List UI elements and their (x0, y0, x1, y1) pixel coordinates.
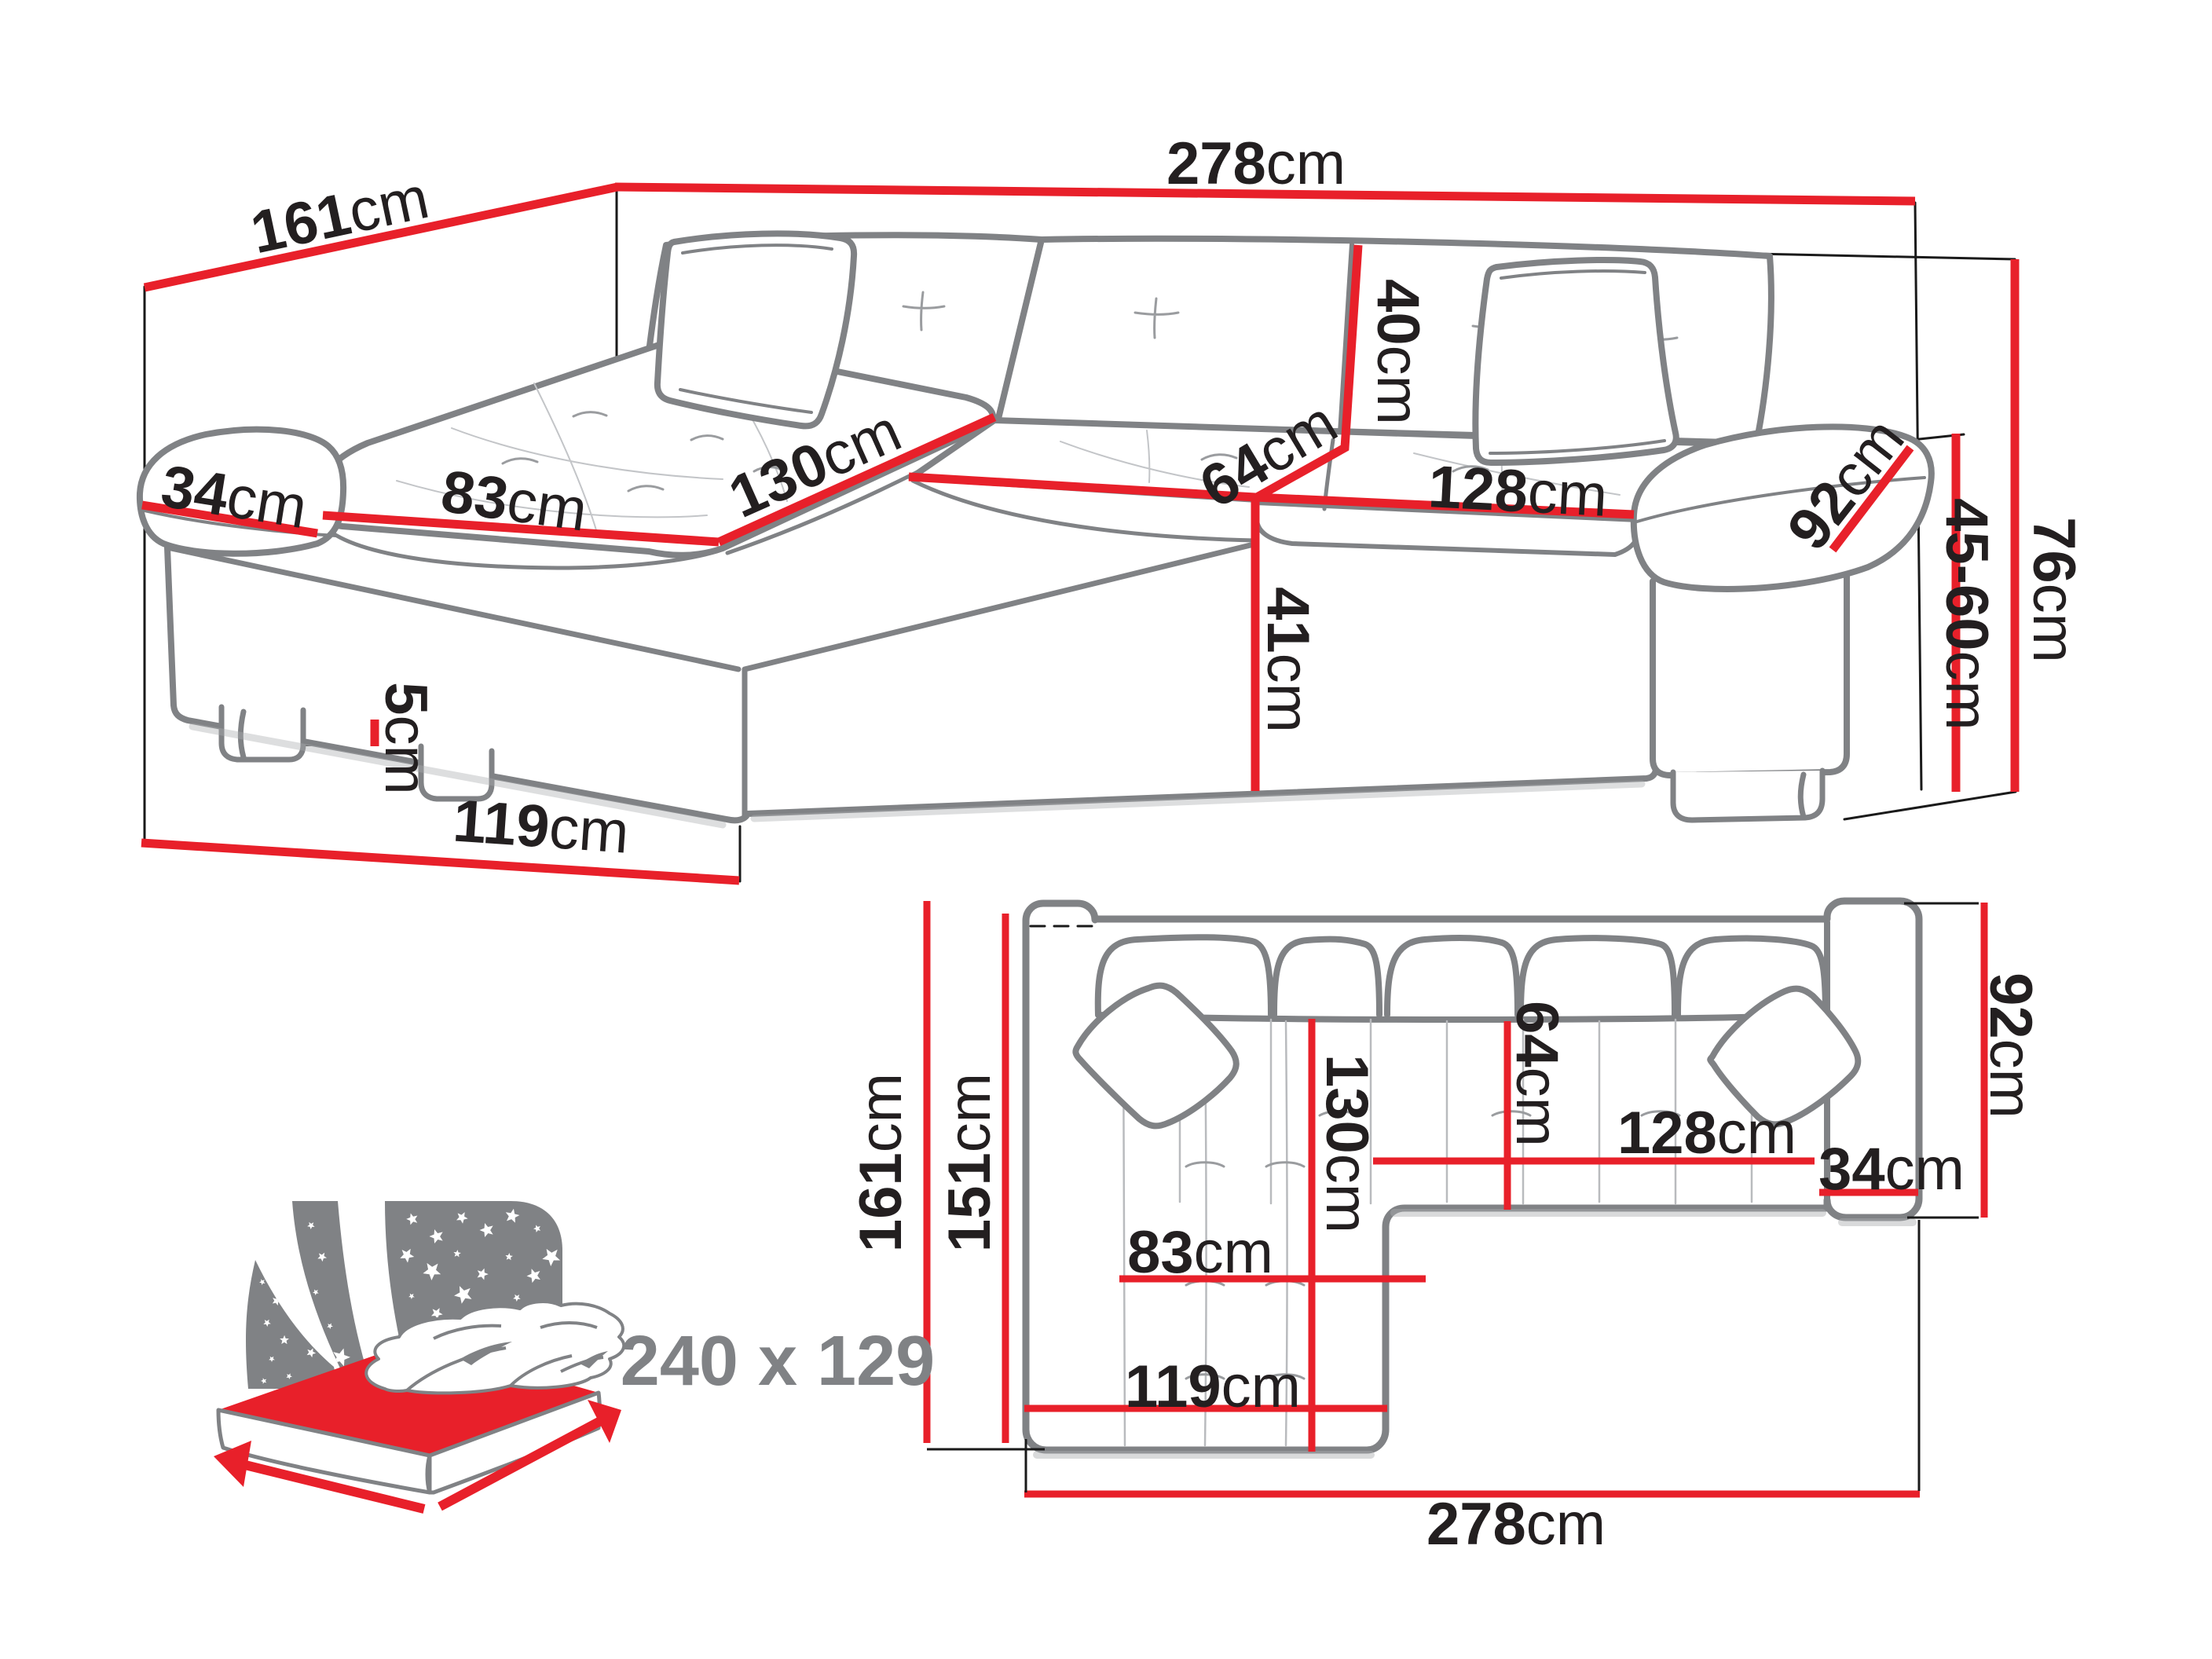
svg-text:119cm: 119cm (1125, 1353, 1301, 1420)
svg-text:64cm: 64cm (1503, 1001, 1570, 1147)
svg-text:278cm: 278cm (1166, 130, 1346, 197)
svg-text:83cm: 83cm (1127, 1219, 1273, 1286)
svg-text:130cm: 130cm (1313, 1054, 1380, 1233)
svg-text:34cm: 34cm (1818, 1136, 1965, 1203)
svg-text:240 x 129: 240 x 129 (621, 1322, 935, 1401)
svg-text:128cm: 128cm (1617, 1100, 1796, 1166)
svg-text:151cm: 151cm (936, 1073, 1003, 1252)
svg-text:119cm: 119cm (451, 787, 631, 866)
svg-text:40cm: 40cm (1364, 279, 1431, 425)
svg-text:76cm: 76cm (2020, 517, 2087, 663)
svg-text:92cm: 92cm (1977, 972, 2044, 1119)
svg-text:128cm: 128cm (1426, 453, 1609, 529)
svg-text:45-60cm: 45-60cm (1933, 498, 2000, 731)
svg-text:41cm: 41cm (1254, 587, 1321, 733)
svg-text:5cm: 5cm (372, 682, 439, 795)
svg-text:278cm: 278cm (1426, 1491, 1606, 1558)
svg-text:161cm: 161cm (848, 1073, 914, 1252)
